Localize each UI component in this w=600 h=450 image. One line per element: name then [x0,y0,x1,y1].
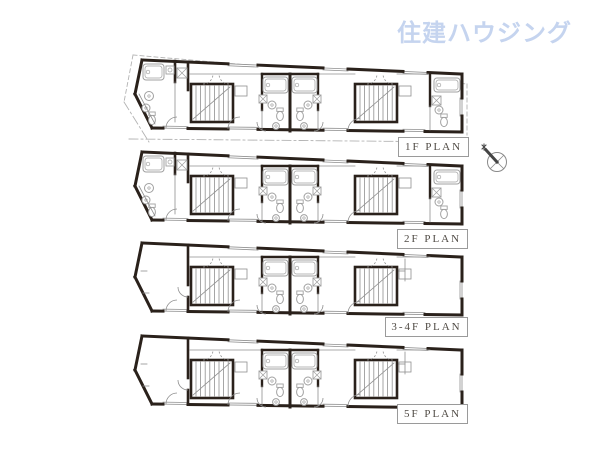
plan-label-3-4f: 3-4F PLAN [385,317,468,337]
north-arrow-icon [482,144,507,172]
floor-plan-2f [135,152,462,224]
plan-label-5f: 5F PLAN [397,404,468,424]
floor-plan-1f [124,55,467,142]
floorplan-page: 住建ハウジング 1F PLAN 2F PLAN 3-4F PLAN 5F PLA… [0,0,600,450]
plan-label-2f: 2F PLAN [397,229,468,249]
plan-label-1f: 1F PLAN [398,137,469,157]
floorplan-drawing [0,0,600,450]
floor-plan-3_4f [135,243,462,315]
floor-plan-5f [135,336,462,408]
